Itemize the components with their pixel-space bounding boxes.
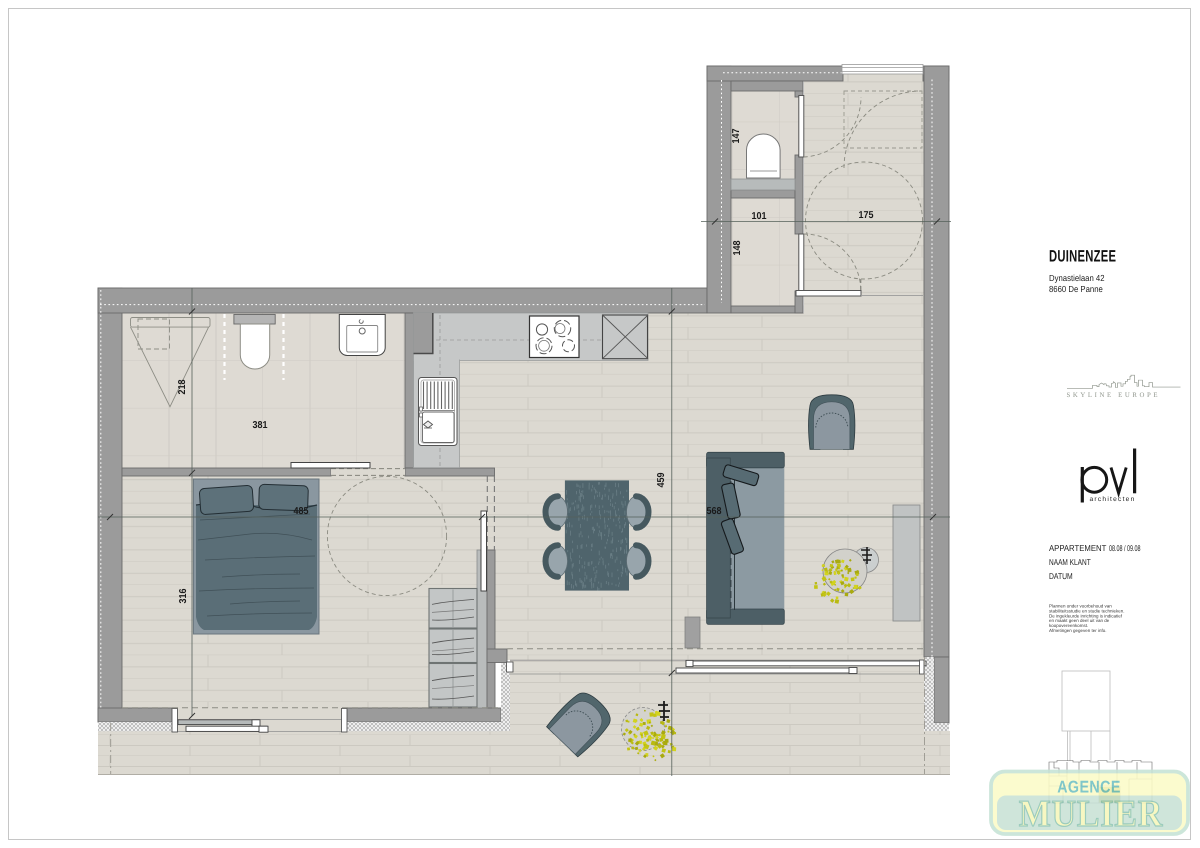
svg-text:381: 381 [253,420,268,431]
svg-text:147: 147 [731,128,742,143]
svg-text:MULIER: MULIER [1019,793,1163,835]
svg-text:101: 101 [752,211,767,222]
svg-text:175: 175 [859,210,874,221]
svg-text:SKYLINE EUROPE: SKYLINE EUROPE [1067,392,1161,399]
svg-text:architecten: architecten [1090,496,1136,503]
svg-text:8660 De Panne: 8660 De Panne [1049,284,1103,294]
svg-text:568: 568 [707,506,722,517]
svg-text:Dynastielaan 42: Dynastielaan 42 [1049,273,1105,283]
svg-text:218: 218 [177,379,188,394]
svg-text:485: 485 [294,506,309,517]
svg-text:316: 316 [178,588,189,603]
svg-text:08.08 / 09.08: 08.08 / 09.08 [1109,544,1141,553]
svg-text:DUINENZEE: DUINENZEE [1049,248,1116,266]
svg-text:DATUM: DATUM [1049,571,1073,581]
svg-text:148: 148 [732,240,743,255]
svg-text:459: 459 [656,472,667,487]
svg-text:APPARTEMENT: APPARTEMENT [1049,543,1107,553]
svg-text:NAAM KLANT: NAAM KLANT [1049,557,1091,567]
svg-text:Afmetingen gegeven ter info.: Afmetingen gegeven ter info. [1049,628,1107,633]
